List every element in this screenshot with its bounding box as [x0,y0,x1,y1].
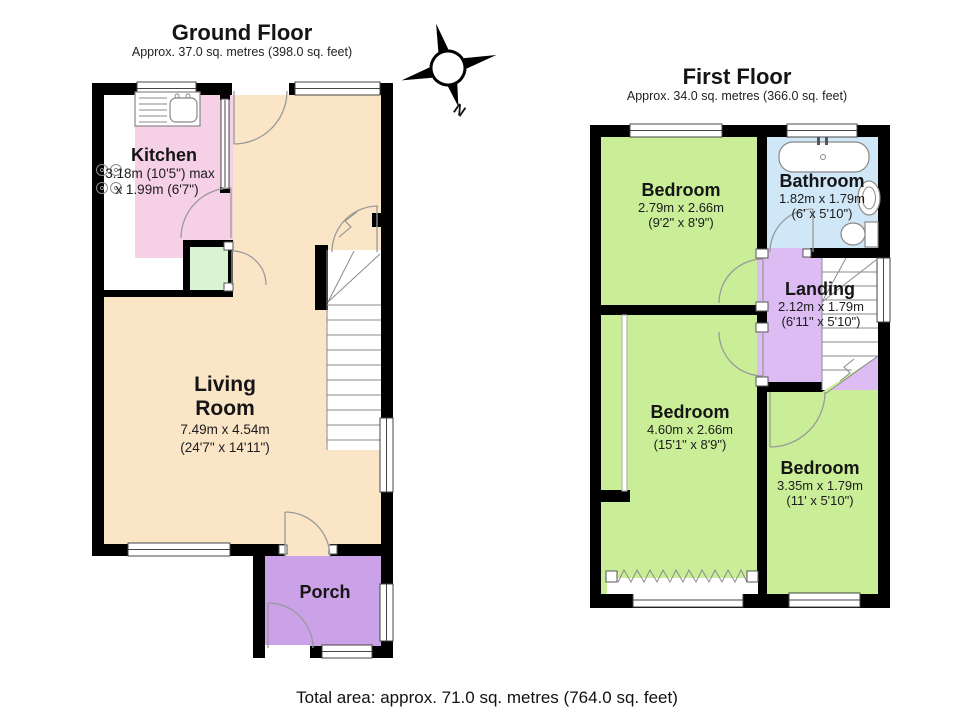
ground-floor-subtitle: Approx. 37.0 sq. metres (398.0 sq. feet) [132,45,352,59]
bedroom-middle-dim-metric: 4.60m x 2.66m [647,422,733,437]
total-area-text: Total area: approx. 71.0 sq. metres (764… [296,688,678,707]
bedroom-rear-label: Bedroom [780,458,859,478]
bedroom-front-window [630,124,722,137]
bathtub-body [779,142,869,172]
door-hinge-block [756,249,768,258]
porch-side-window [380,584,393,641]
living-room-label-2: Room [195,397,255,420]
toilet-icon [841,222,878,247]
bedroom-middle-window [633,593,743,607]
landing-bottom-wall [767,382,822,392]
front-door-opening [232,83,289,95]
bedroom-front-dim-metric: 2.79m x 2.66m [638,200,724,215]
door-hinge-block [756,377,768,386]
landing-dim-imperial: (6'11" x 5'10") [782,314,861,329]
store-room [190,247,228,290]
kitchen-label: Kitchen [131,145,197,165]
compass-icon: N [390,11,507,121]
bath-tap [817,137,820,145]
ff-alcove-line [622,315,627,491]
bathtub-icon [779,137,869,172]
living-room-dim-imperial: (24'7" x 14'11") [180,440,270,455]
living-top-window [295,82,380,95]
toilet-cistern [865,222,878,247]
kitchen-dim-imperial: x 1.99m (6'7") [115,182,198,197]
ground-floor-title: Ground Floor [172,20,313,45]
bedroom-rear-dim-metric: 3.35m x 1.79m [777,478,863,493]
bedroom-middle-label: Bedroom [650,402,729,422]
bedroom-front-dim-imperial: (9'2" x 8'9") [648,215,714,230]
bathroom-dim-metric: 1.82m x 1.79m [779,191,865,206]
landing-label: Landing [785,279,855,299]
floorplan-page: Ground Floor Approx. 37.0 sq. metres (39… [0,0,980,712]
living-room-label-1: Living [194,373,256,396]
door-hinge-block [756,302,768,311]
gf-stairs-stub-wall [315,245,328,310]
bath-tap [825,137,828,145]
ff-bedroom-divider-wall [601,305,757,315]
bathroom-bottom-wall [810,248,878,258]
porch-door-opening [285,544,330,556]
first-floor-title: First Floor [683,64,792,89]
first-floor-plan: First Floor Approx. 34.0 sq. metres (366… [590,64,890,608]
bedroom-middle-doorway [757,332,767,377]
living-bottom-window [128,543,230,556]
kitchen-side-area-lower [104,258,185,290]
bathroom-window [787,124,857,137]
compass-circle [427,47,469,89]
door-hinge-block [279,545,287,554]
first-floor-subtitle: Approx. 34.0 sq. metres (366.0 sq. feet) [627,89,847,103]
porch-bottom-window [322,645,372,658]
toilet-bowl [841,223,865,245]
bathroom-label: Bathroom [780,171,865,191]
bedroom-rear-window [789,593,860,607]
wardrobe-end-block [606,571,617,582]
bedroom-rear-dim-imperial: (11' x 5'10") [786,493,853,508]
living-room-left [104,297,233,544]
landing-dim-metric: 2.12m x 1.79m [778,299,864,314]
gf-store-left-wall [183,240,190,297]
bedroom-front-label: Bedroom [641,180,720,200]
sink-unit-icon [135,92,200,126]
living-room-dim-metric: 7.49m x 4.54m [180,422,269,437]
bedroom-front-doorway [757,258,767,302]
ff-alcove-stub [601,490,630,502]
compass-north-label: N [450,101,469,121]
stairs-side-window [877,258,890,322]
door-hinge-block [224,242,233,250]
bathroom-dim-imperial: (6' x 5'10") [792,206,853,221]
porch-entrance-opening [265,645,310,658]
wardrobe-end-block [747,571,758,582]
kitchen-dim-metric: 3.18m (10'5") max [105,166,215,181]
floorplan-drawing: Ground Floor Approx. 37.0 sq. metres (39… [0,0,980,712]
door-hinge-block [803,249,811,257]
porch-label: Porch [299,582,350,602]
living-side-window [380,418,393,492]
gf-kitchen-bottom-wall [104,290,233,297]
door-hinge-block [756,323,768,332]
sink-bowl [170,98,197,122]
ground-floor-plan: Ground Floor Approx. 37.0 sq. metres (39… [92,20,393,658]
bedroom-middle-dim-imperial: (15'1" x 8'9") [654,437,727,452]
